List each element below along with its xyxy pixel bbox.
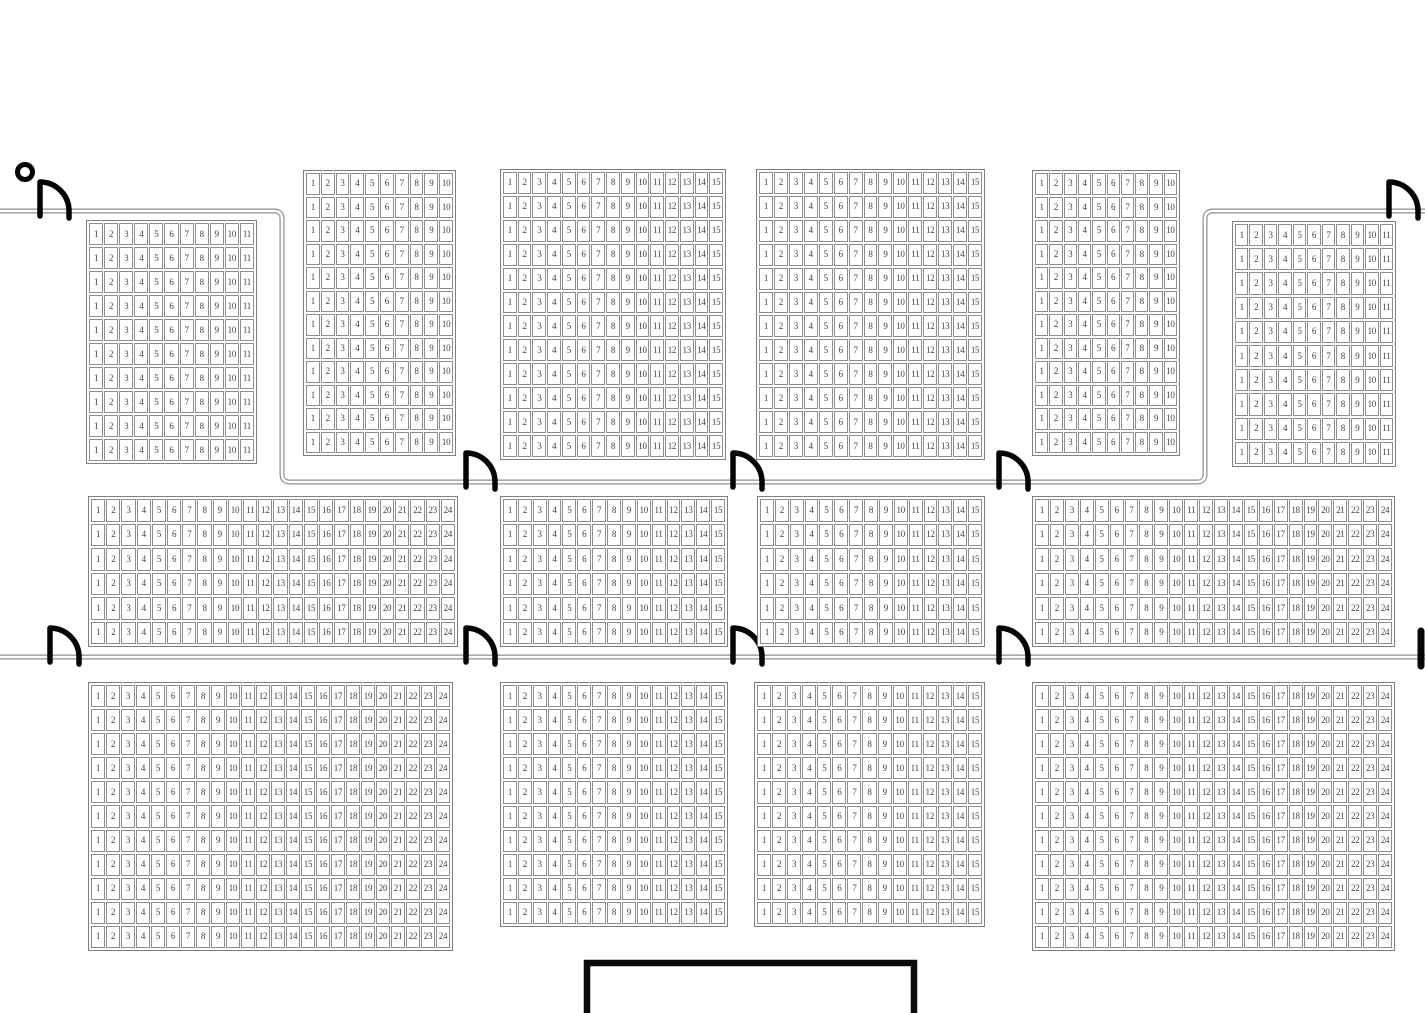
seat-cell[interactable]: 10: [893, 196, 907, 218]
seat-cell[interactable]: 6: [832, 878, 846, 900]
seat-cell[interactable]: 2: [518, 172, 532, 194]
seat-cell[interactable]: 15: [711, 524, 725, 547]
seat-cell[interactable]: 19: [361, 757, 375, 779]
seat-cell[interactable]: 1: [1235, 321, 1248, 343]
seat-cell[interactable]: 1: [306, 291, 320, 313]
seat-cell[interactable]: 5: [151, 926, 165, 948]
seat-cell[interactable]: 8: [410, 361, 424, 383]
seat-cell[interactable]: 15: [1244, 709, 1258, 731]
seat-cell[interactable]: 4: [802, 685, 816, 707]
seat-cell[interactable]: 1: [1035, 622, 1049, 645]
seat-cell[interactable]: 18: [350, 548, 364, 571]
seat-cell[interactable]: 9: [211, 805, 225, 827]
seat-cell[interactable]: 2: [774, 220, 788, 242]
seat-cell[interactable]: 7: [847, 806, 861, 828]
seat-cell[interactable]: 13: [1214, 854, 1228, 876]
seat-cell[interactable]: 23: [1363, 757, 1377, 779]
seat-cell[interactable]: 11: [1184, 733, 1198, 755]
seat-cell[interactable]: 15: [711, 878, 725, 900]
seat-cell[interactable]: 3: [1264, 321, 1277, 343]
seat-cell[interactable]: 2: [774, 435, 788, 457]
seat-cell[interactable]: 17: [1274, 733, 1288, 755]
seat-cell[interactable]: 6: [1110, 573, 1124, 596]
seat-cell[interactable]: 3: [1264, 393, 1277, 415]
seat-cell[interactable]: 7: [395, 408, 409, 430]
seat-cell[interactable]: 2: [106, 733, 120, 755]
seat-cell[interactable]: 1: [757, 757, 771, 779]
seat-cell[interactable]: 11: [1380, 248, 1393, 270]
seat-cell[interactable]: 8: [864, 524, 878, 547]
seat-cell[interactable]: 10: [1365, 393, 1378, 415]
seat-cell[interactable]: 12: [923, 781, 937, 803]
seat-cell[interactable]: 3: [1064, 408, 1077, 430]
seat-cell[interactable]: 22: [1348, 573, 1362, 596]
seat-cell[interactable]: 2: [518, 387, 532, 409]
seat-cell[interactable]: 8: [607, 757, 621, 779]
seat-cell[interactable]: 6: [1307, 369, 1320, 391]
seat-cell[interactable]: 7: [591, 244, 605, 266]
seat-cell[interactable]: 6: [380, 408, 394, 430]
seat-cell[interactable]: 15: [301, 830, 315, 852]
seat-cell[interactable]: 10: [439, 197, 453, 219]
seat-cell[interactable]: 17: [1274, 878, 1288, 900]
seat-cell[interactable]: 1: [503, 854, 517, 876]
seat-cell[interactable]: 15: [968, 685, 982, 707]
seat-cell[interactable]: 6: [164, 319, 178, 341]
seat-cell[interactable]: 6: [380, 267, 394, 289]
seat-cell[interactable]: 3: [533, 597, 547, 620]
seat-cell[interactable]: 19: [361, 709, 375, 731]
seat-cell[interactable]: 12: [256, 926, 270, 948]
seat-cell[interactable]: 13: [938, 806, 952, 828]
seat-cell[interactable]: 15: [301, 709, 315, 731]
seat-cell[interactable]: 21: [391, 733, 405, 755]
seat-cell[interactable]: 17: [1274, 524, 1288, 547]
seat-cell[interactable]: 3: [1065, 524, 1079, 547]
seat-cell[interactable]: 5: [152, 597, 166, 620]
seat-cell[interactable]: 2: [321, 267, 335, 289]
seat-cell[interactable]: 10: [1164, 338, 1177, 360]
seat-cell[interactable]: 8: [606, 220, 620, 242]
seat-cell[interactable]: 6: [834, 524, 848, 547]
seat-cell[interactable]: 8: [1336, 393, 1349, 415]
seat-cell[interactable]: 10: [1365, 418, 1378, 440]
seat-cell[interactable]: 12: [667, 709, 681, 731]
seat-cell[interactable]: 4: [1078, 361, 1091, 383]
seat-cell[interactable]: 2: [104, 319, 118, 341]
seat-cell[interactable]: 23: [421, 878, 435, 900]
seat-cell[interactable]: 1: [1035, 902, 1049, 924]
seat-cell[interactable]: 22: [1348, 709, 1362, 731]
seat-cell[interactable]: 4: [137, 548, 151, 571]
seat-cell[interactable]: 5: [562, 854, 576, 876]
seat-cell[interactable]: 24: [1378, 854, 1392, 876]
seat-cell[interactable]: 22: [1348, 781, 1362, 803]
seat-cell[interactable]: 11: [241, 805, 255, 827]
seat-cell[interactable]: 2: [104, 439, 118, 461]
seat-cell[interactable]: 22: [406, 805, 420, 827]
seat-cell[interactable]: 21: [395, 573, 409, 596]
seat-cell[interactable]: 13: [680, 292, 694, 314]
seat-cell[interactable]: 3: [1064, 338, 1077, 360]
seat-cell[interactable]: 12: [665, 268, 679, 290]
seat-cell[interactable]: 6: [832, 902, 846, 924]
seat-cell[interactable]: 2: [518, 622, 532, 645]
seat-cell[interactable]: 6: [832, 757, 846, 779]
seat-cell[interactable]: 1: [760, 524, 774, 547]
seat-cell[interactable]: 24: [1378, 524, 1392, 547]
seat-cell[interactable]: 6: [834, 411, 848, 433]
seat-cell[interactable]: 18: [346, 781, 360, 803]
seat-cell[interactable]: 14: [1229, 830, 1243, 852]
seat-cell[interactable]: 4: [547, 292, 561, 314]
seat-cell[interactable]: 6: [380, 173, 394, 195]
seat-cell[interactable]: 20: [1318, 622, 1332, 645]
seat-cell[interactable]: 8: [1139, 709, 1153, 731]
seat-cell[interactable]: 10: [1169, 685, 1183, 707]
seat-cell[interactable]: 4: [547, 363, 561, 385]
seat-cell[interactable]: 3: [789, 220, 803, 242]
seat-cell[interactable]: 6: [832, 685, 846, 707]
seat-cell[interactable]: 2: [518, 854, 532, 876]
seat-cell[interactable]: 14: [953, 435, 967, 457]
seat-cell[interactable]: 12: [923, 268, 937, 290]
seat-cell[interactable]: 4: [134, 319, 148, 341]
seat-cell[interactable]: 7: [849, 363, 863, 385]
seat-cell[interactable]: 16: [1259, 854, 1273, 876]
seat-cell[interactable]: 13: [1214, 685, 1228, 707]
seat-cell[interactable]: 10: [637, 854, 651, 876]
seat-cell[interactable]: 4: [134, 367, 148, 389]
seat-cell[interactable]: 5: [151, 733, 165, 755]
seat-cell[interactable]: 1: [89, 319, 103, 341]
seat-cell[interactable]: 8: [196, 757, 210, 779]
seat-cell[interactable]: 3: [790, 622, 804, 645]
seat-cell[interactable]: 10: [439, 432, 453, 454]
seat-cell[interactable]: 18: [1289, 757, 1303, 779]
seat-cell[interactable]: 21: [1333, 733, 1347, 755]
seat-cell[interactable]: 4: [804, 220, 818, 242]
seat-cell[interactable]: 3: [532, 435, 546, 457]
seat-cell[interactable]: 19: [1304, 622, 1318, 645]
seat-cell[interactable]: 3: [121, 733, 135, 755]
seat-cell[interactable]: 8: [864, 172, 878, 194]
seat-cell[interactable]: 3: [533, 757, 547, 779]
seat-cell[interactable]: 8: [864, 220, 878, 242]
seat-cell[interactable]: 15: [968, 902, 982, 924]
seat-cell[interactable]: 7: [1322, 224, 1335, 246]
seat-cell[interactable]: 6: [166, 830, 180, 852]
seat-cell[interactable]: 17: [331, 902, 345, 924]
seat-cell[interactable]: 3: [533, 854, 547, 876]
seat-cell[interactable]: 1: [306, 220, 320, 242]
seat-cell[interactable]: 5: [819, 411, 833, 433]
seat-cell[interactable]: 10: [228, 622, 242, 645]
seat-cell[interactable]: 9: [622, 854, 636, 876]
seat-cell[interactable]: 6: [577, 411, 591, 433]
seat-cell[interactable]: 13: [938, 830, 952, 852]
seat-cell[interactable]: 14: [953, 781, 967, 803]
seat-cell[interactable]: 8: [606, 435, 620, 457]
seat-cell[interactable]: 1: [503, 411, 517, 433]
seat-cell[interactable]: 6: [166, 805, 180, 827]
seat-cell[interactable]: 8: [1336, 224, 1349, 246]
seat-cell[interactable]: 4: [1078, 244, 1091, 266]
seat-cell[interactable]: 10: [1164, 267, 1177, 289]
seat-cell[interactable]: 3: [533, 733, 547, 755]
seat-cell[interactable]: 7: [849, 411, 863, 433]
seat-cell[interactable]: 6: [380, 291, 394, 313]
seat-cell[interactable]: 21: [1333, 926, 1347, 948]
seat-cell[interactable]: 10: [228, 573, 242, 596]
seat-cell[interactable]: 10: [225, 319, 239, 341]
seat-cell[interactable]: 22: [406, 878, 420, 900]
seat-cell[interactable]: 9: [879, 548, 893, 571]
seat-cell[interactable]: 13: [271, 926, 285, 948]
seat-cell[interactable]: 8: [1135, 244, 1148, 266]
seat-cell[interactable]: 4: [805, 597, 819, 620]
seat-cell[interactable]: 8: [864, 363, 878, 385]
seat-cell[interactable]: 15: [1244, 902, 1258, 924]
seat-cell[interactable]: 4: [136, 878, 150, 900]
seat-cell[interactable]: 10: [439, 338, 453, 360]
seat-cell[interactable]: 14: [696, 757, 710, 779]
seat-cell[interactable]: 1: [91, 854, 105, 876]
seat-cell[interactable]: 9: [622, 499, 636, 522]
seat-cell[interactable]: 19: [1304, 878, 1318, 900]
seat-cell[interactable]: 10: [637, 685, 651, 707]
seat-cell[interactable]: 7: [591, 268, 605, 290]
seat-cell[interactable]: 8: [197, 622, 211, 645]
seat-cell[interactable]: 12: [1199, 757, 1213, 779]
seat-cell[interactable]: 11: [241, 709, 255, 731]
seat-cell[interactable]: 2: [774, 411, 788, 433]
seat-cell[interactable]: 5: [365, 220, 379, 242]
seat-cell[interactable]: 1: [1235, 418, 1248, 440]
seat-cell[interactable]: 3: [336, 314, 350, 336]
seat-cell[interactable]: 4: [134, 295, 148, 317]
seat-cell[interactable]: 19: [1304, 902, 1318, 924]
seat-cell[interactable]: 14: [1229, 733, 1243, 755]
seat-cell[interactable]: 7: [395, 432, 409, 454]
seat-cell[interactable]: 12: [667, 854, 681, 876]
seat-cell[interactable]: 8: [607, 902, 621, 924]
seat-cell[interactable]: 4: [1078, 338, 1091, 360]
seat-cell[interactable]: 4: [548, 524, 562, 547]
seat-cell[interactable]: 1: [503, 363, 517, 385]
seat-cell[interactable]: 15: [711, 733, 725, 755]
seat-cell[interactable]: 3: [336, 432, 350, 454]
seat-cell[interactable]: 2: [772, 902, 786, 924]
seat-cell[interactable]: 15: [968, 597, 982, 620]
seat-cell[interactable]: 2: [106, 548, 120, 571]
seat-cell[interactable]: 2: [1050, 926, 1064, 948]
seat-cell[interactable]: 13: [1214, 548, 1228, 571]
seat-cell[interactable]: 5: [562, 499, 576, 522]
seat-cell[interactable]: 24: [436, 685, 450, 707]
seat-cell[interactable]: 19: [361, 878, 375, 900]
seat-cell[interactable]: 8: [864, 196, 878, 218]
seat-cell[interactable]: 13: [938, 685, 952, 707]
seat-cell[interactable]: 9: [211, 685, 225, 707]
seat-cell[interactable]: 1: [760, 622, 774, 645]
seat-cell[interactable]: 6: [834, 292, 848, 314]
seat-cell[interactable]: 7: [182, 499, 196, 522]
seat-cell[interactable]: 8: [864, 315, 878, 337]
seat-cell[interactable]: 2: [1049, 244, 1062, 266]
seat-cell[interactable]: 8: [606, 315, 620, 337]
seat-cell[interactable]: 4: [137, 573, 151, 596]
seat-cell[interactable]: 8: [862, 733, 876, 755]
seat-cell[interactable]: 4: [1080, 830, 1094, 852]
seat-cell[interactable]: 7: [592, 830, 606, 852]
seat-cell[interactable]: 19: [361, 805, 375, 827]
seat-cell[interactable]: 1: [306, 338, 320, 360]
seat-cell[interactable]: 23: [1363, 733, 1377, 755]
seat-cell[interactable]: 5: [365, 408, 379, 430]
seat-cell[interactable]: 10: [636, 268, 650, 290]
seat-cell[interactable]: 3: [121, 709, 135, 731]
seat-cell[interactable]: 6: [577, 548, 591, 571]
seat-cell[interactable]: 3: [533, 573, 547, 596]
seat-cell[interactable]: 15: [711, 830, 725, 852]
seat-cell[interactable]: 1: [759, 172, 773, 194]
seat-cell[interactable]: 22: [1348, 926, 1362, 948]
seat-cell[interactable]: 22: [410, 597, 424, 620]
seat-cell[interactable]: 9: [621, 411, 635, 433]
seat-cell[interactable]: 4: [136, 830, 150, 852]
seat-cell[interactable]: 5: [152, 524, 166, 547]
seat-cell[interactable]: 14: [953, 757, 967, 779]
seat-cell[interactable]: 11: [1380, 224, 1393, 246]
seat-cell[interactable]: 10: [637, 806, 651, 828]
seat-cell[interactable]: 24: [1378, 878, 1392, 900]
seat-cell[interactable]: 9: [879, 524, 893, 547]
seat-cell[interactable]: 2: [1050, 597, 1064, 620]
seat-cell[interactable]: 5: [152, 499, 166, 522]
seat-cell[interactable]: 22: [1348, 854, 1362, 876]
seat-cell[interactable]: 13: [938, 573, 952, 596]
seat-cell[interactable]: 12: [665, 411, 679, 433]
seat-cell[interactable]: 1: [89, 223, 103, 245]
seat-cell[interactable]: 11: [908, 830, 922, 852]
seat-cell[interactable]: 10: [228, 597, 242, 620]
seat-cell[interactable]: 4: [548, 548, 562, 571]
seat-cell[interactable]: 9: [211, 781, 225, 803]
seat-cell[interactable]: 17: [334, 524, 348, 547]
seat-cell[interactable]: 10: [1164, 408, 1177, 430]
seat-cell[interactable]: 8: [864, 244, 878, 266]
seat-cell[interactable]: 7: [181, 926, 195, 948]
seat-cell[interactable]: 16: [316, 902, 330, 924]
seat-cell[interactable]: 10: [1164, 385, 1177, 407]
seat-cell[interactable]: 5: [1293, 418, 1306, 440]
seat-cell[interactable]: 22: [1348, 830, 1362, 852]
seat-cell[interactable]: 7: [395, 267, 409, 289]
seat-cell[interactable]: 11: [240, 271, 254, 293]
seat-cell[interactable]: 11: [650, 387, 664, 409]
seat-cell[interactable]: 7: [849, 172, 863, 194]
seat-cell[interactable]: 1: [1035, 926, 1049, 948]
seat-cell[interactable]: 15: [711, 709, 725, 731]
seat-cell[interactable]: 2: [1050, 805, 1064, 827]
seat-cell[interactable]: 8: [195, 295, 209, 317]
seat-cell[interactable]: 4: [804, 411, 818, 433]
seat-cell[interactable]: 2: [106, 781, 120, 803]
seat-cell[interactable]: 6: [577, 685, 591, 707]
seat-cell[interactable]: 7: [1125, 573, 1139, 596]
seat-cell[interactable]: 20: [380, 499, 394, 522]
seat-cell[interactable]: 10: [637, 709, 651, 731]
seat-cell[interactable]: 11: [1184, 548, 1198, 571]
seat-cell[interactable]: 7: [591, 315, 605, 337]
seat-cell[interactable]: 15: [968, 172, 982, 194]
seat-cell[interactable]: 16: [1259, 524, 1273, 547]
seat-cell[interactable]: 4: [1278, 442, 1291, 464]
seat-cell[interactable]: 10: [893, 339, 907, 361]
seat-cell[interactable]: 20: [380, 573, 394, 596]
seat-cell[interactable]: 5: [819, 573, 833, 596]
seat-cell[interactable]: 7: [1121, 338, 1134, 360]
seat-cell[interactable]: 15: [968, 709, 982, 731]
seat-cell[interactable]: 2: [1049, 197, 1062, 219]
seat-cell[interactable]: 20: [1318, 709, 1332, 731]
seat-cell[interactable]: 13: [271, 781, 285, 803]
seat-cell[interactable]: 5: [819, 172, 833, 194]
seat-cell[interactable]: 12: [923, 902, 937, 924]
seat-cell[interactable]: 16: [1259, 733, 1273, 755]
seat-cell[interactable]: 11: [241, 685, 255, 707]
seat-cell[interactable]: 13: [681, 622, 695, 645]
seat-cell[interactable]: 7: [592, 806, 606, 828]
seat-cell[interactable]: 7: [180, 247, 194, 269]
seat-cell[interactable]: 18: [1289, 902, 1303, 924]
seat-cell[interactable]: 22: [1348, 757, 1362, 779]
seat-cell[interactable]: 7: [1121, 314, 1134, 336]
seat-cell[interactable]: 3: [790, 597, 804, 620]
seat-cell[interactable]: 8: [195, 223, 209, 245]
seat-cell[interactable]: 14: [696, 499, 710, 522]
seat-cell[interactable]: 2: [1050, 524, 1064, 547]
seat-cell[interactable]: 22: [1348, 805, 1362, 827]
seat-cell[interactable]: 1: [89, 415, 103, 437]
seat-cell[interactable]: 10: [637, 902, 651, 924]
seat-cell[interactable]: 9: [1154, 709, 1168, 731]
seat-cell[interactable]: 9: [210, 247, 224, 269]
seat-cell[interactable]: 15: [1244, 781, 1258, 803]
seat-cell[interactable]: 7: [591, 411, 605, 433]
seat-cell[interactable]: 22: [1348, 685, 1362, 707]
seat-cell[interactable]: 13: [680, 196, 694, 218]
seat-cell[interactable]: 9: [424, 220, 438, 242]
seat-cell[interactable]: 11: [909, 499, 923, 522]
seat-cell[interactable]: 11: [650, 196, 664, 218]
seat-cell[interactable]: 15: [709, 268, 723, 290]
seat-cell[interactable]: 2: [518, 524, 532, 547]
seat-cell[interactable]: 10: [226, 781, 240, 803]
seat-cell[interactable]: 15: [711, 806, 725, 828]
seat-cell[interactable]: 18: [350, 573, 364, 596]
seat-cell[interactable]: 12: [924, 524, 938, 547]
seat-cell[interactable]: 11: [1184, 622, 1198, 645]
seat-cell[interactable]: 2: [1049, 338, 1062, 360]
seat-cell[interactable]: 2: [518, 411, 532, 433]
seat-cell[interactable]: 13: [680, 435, 694, 457]
seat-cell[interactable]: 8: [195, 343, 209, 365]
seat-cell[interactable]: 9: [622, 757, 636, 779]
seat-cell[interactable]: 5: [817, 757, 831, 779]
seat-cell[interactable]: 22: [406, 709, 420, 731]
